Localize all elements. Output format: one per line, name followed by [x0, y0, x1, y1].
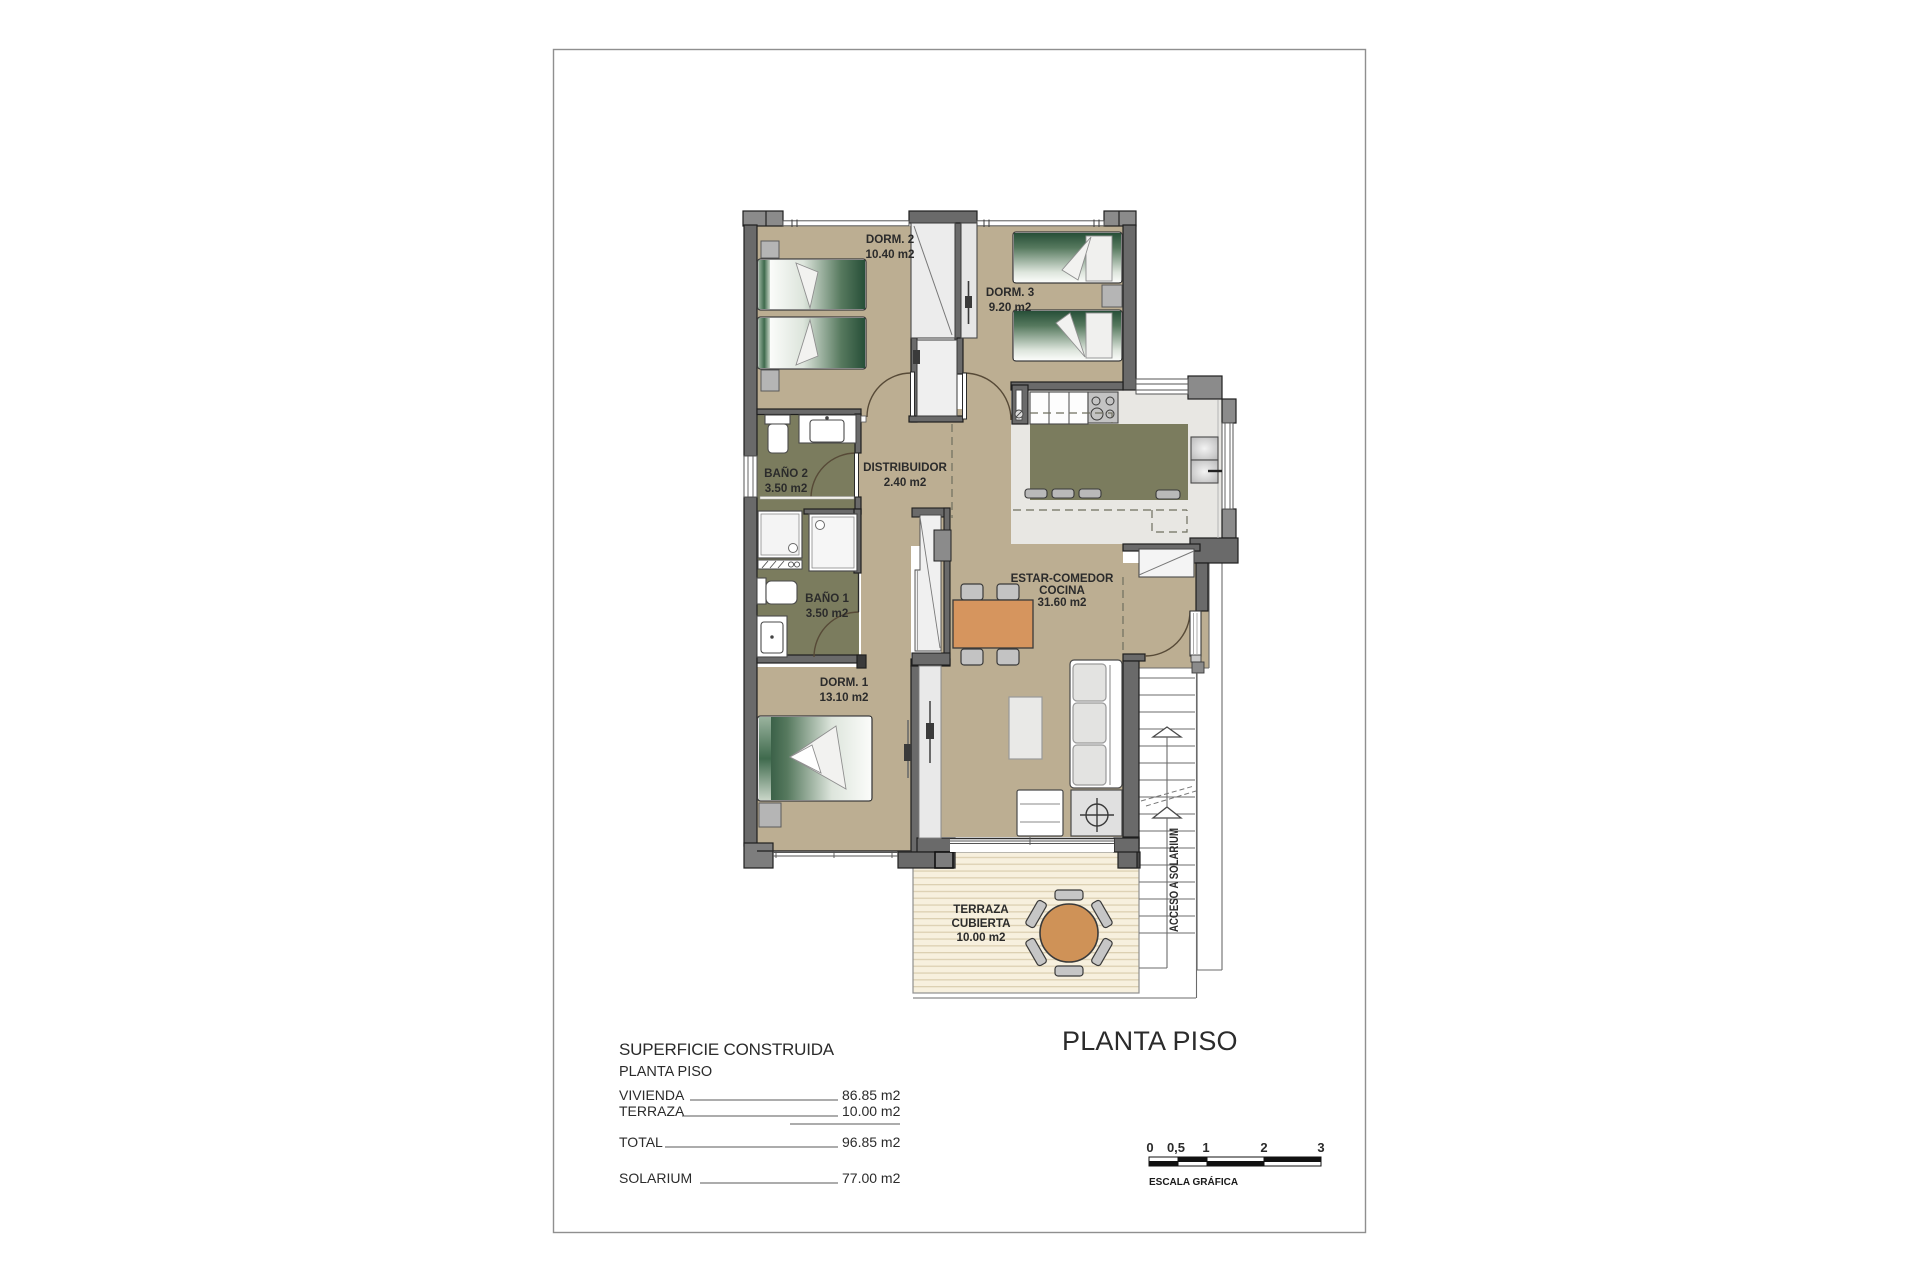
- svg-text:0,5: 0,5: [1167, 1140, 1185, 1155]
- svg-text:TERRAZA: TERRAZA: [619, 1103, 685, 1119]
- svg-text:CUBIERTA: CUBIERTA: [951, 917, 1011, 930]
- svg-text:DORM. 2: DORM. 2: [866, 233, 914, 246]
- svg-text:BAÑO 2: BAÑO 2: [764, 467, 808, 480]
- svg-text:31.60 m2: 31.60 m2: [1038, 596, 1087, 609]
- svg-text:PLANTA PISO: PLANTA PISO: [619, 1064, 712, 1080]
- svg-text:13.10 m2: 13.10 m2: [820, 691, 869, 704]
- svg-text:DISTRIBUIDOR: DISTRIBUIDOR: [863, 461, 947, 474]
- svg-text:ACCESO A SOLARIUM: ACCESO A SOLARIUM: [1169, 828, 1181, 932]
- svg-text:BAÑO 1: BAÑO 1: [805, 592, 849, 605]
- svg-text:86.85 m2: 86.85 m2: [842, 1087, 901, 1103]
- svg-text:VIVIENDA: VIVIENDA: [619, 1087, 685, 1103]
- svg-text:10.40 m2: 10.40 m2: [866, 248, 915, 261]
- svg-text:DORM. 1: DORM. 1: [820, 676, 869, 689]
- svg-text:TOTAL: TOTAL: [619, 1134, 663, 1150]
- svg-text:PLANTA PISO: PLANTA PISO: [1062, 1026, 1238, 1056]
- svg-text:96.85 m2: 96.85 m2: [842, 1134, 901, 1150]
- svg-text:1: 1: [1202, 1140, 1209, 1155]
- svg-text:9.20 m2: 9.20 m2: [989, 301, 1032, 314]
- svg-text:10.00 m2: 10.00 m2: [957, 931, 1006, 944]
- svg-text:0: 0: [1146, 1140, 1153, 1155]
- svg-text:77.00 m2: 77.00 m2: [842, 1170, 901, 1186]
- svg-text:10.00 m2: 10.00 m2: [842, 1103, 901, 1119]
- svg-text:3.50 m2: 3.50 m2: [806, 607, 849, 620]
- svg-text:SOLARIUM: SOLARIUM: [619, 1170, 692, 1186]
- svg-text:SUPERFICIE CONSTRUIDA: SUPERFICIE CONSTRUIDA: [619, 1040, 835, 1059]
- svg-text:2.40 m2: 2.40 m2: [884, 476, 927, 489]
- svg-text:DORM. 3: DORM. 3: [986, 286, 1035, 299]
- svg-text:3: 3: [1317, 1140, 1324, 1155]
- svg-text:3.50 m2: 3.50 m2: [765, 482, 808, 495]
- svg-text:2: 2: [1260, 1140, 1267, 1155]
- svg-text:TERRAZA: TERRAZA: [953, 903, 1009, 916]
- svg-text:ESCALA GRÁFICA: ESCALA GRÁFICA: [1149, 1175, 1238, 1188]
